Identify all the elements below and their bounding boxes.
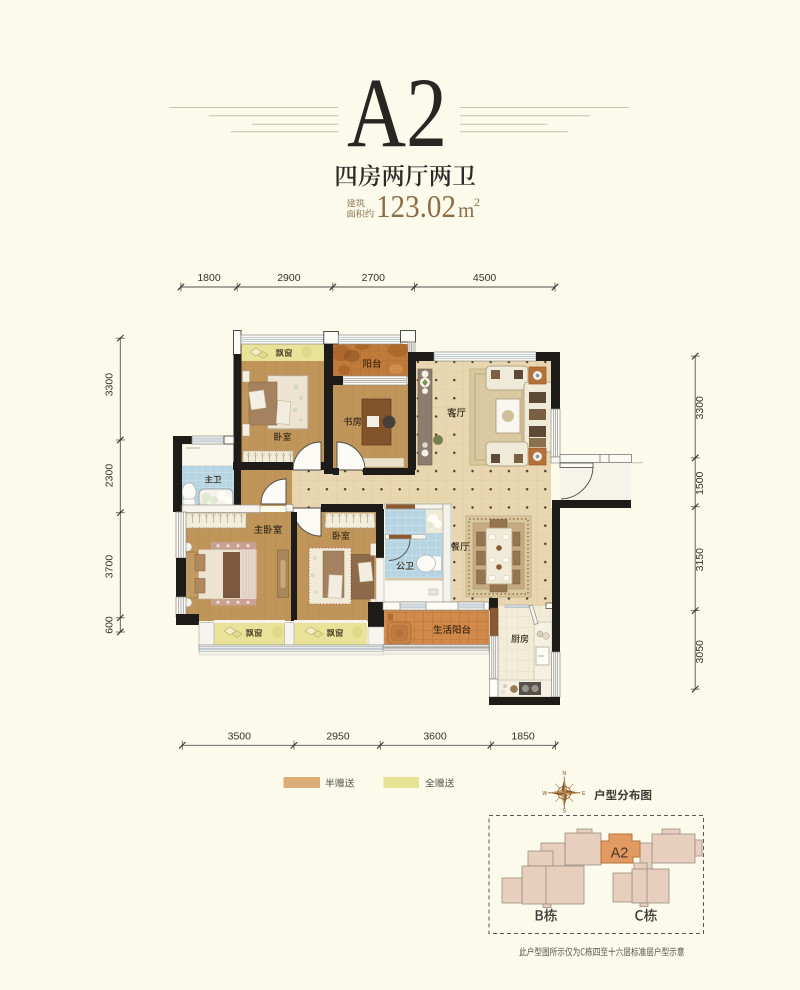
svg-text:1800: 1800 [197, 272, 221, 284]
svg-text:1850: 1850 [511, 731, 535, 743]
svg-text:2900: 2900 [277, 272, 301, 284]
svg-text:m: m [458, 198, 474, 222]
svg-text:2950: 2950 [326, 731, 350, 743]
svg-text:123.02: 123.02 [376, 188, 456, 224]
svg-text:A2: A2 [347, 57, 447, 168]
svg-text:3050: 3050 [694, 640, 706, 664]
svg-text:4500: 4500 [473, 272, 497, 284]
svg-text:A2: A2 [611, 846, 629, 862]
svg-text:2: 2 [474, 195, 480, 209]
svg-text:600: 600 [104, 616, 116, 634]
svg-text:3300: 3300 [104, 373, 116, 397]
svg-text:3500: 3500 [228, 731, 252, 743]
svg-text:N: N [562, 771, 566, 777]
svg-text:3600: 3600 [423, 731, 447, 743]
svg-text:W: W [542, 791, 547, 797]
svg-text:1500: 1500 [694, 471, 706, 495]
svg-text:2700: 2700 [362, 272, 386, 284]
svg-text:2300: 2300 [104, 464, 116, 488]
svg-text:3700: 3700 [104, 555, 116, 579]
svg-text:3300: 3300 [694, 396, 706, 420]
svg-text:3150: 3150 [694, 548, 706, 572]
